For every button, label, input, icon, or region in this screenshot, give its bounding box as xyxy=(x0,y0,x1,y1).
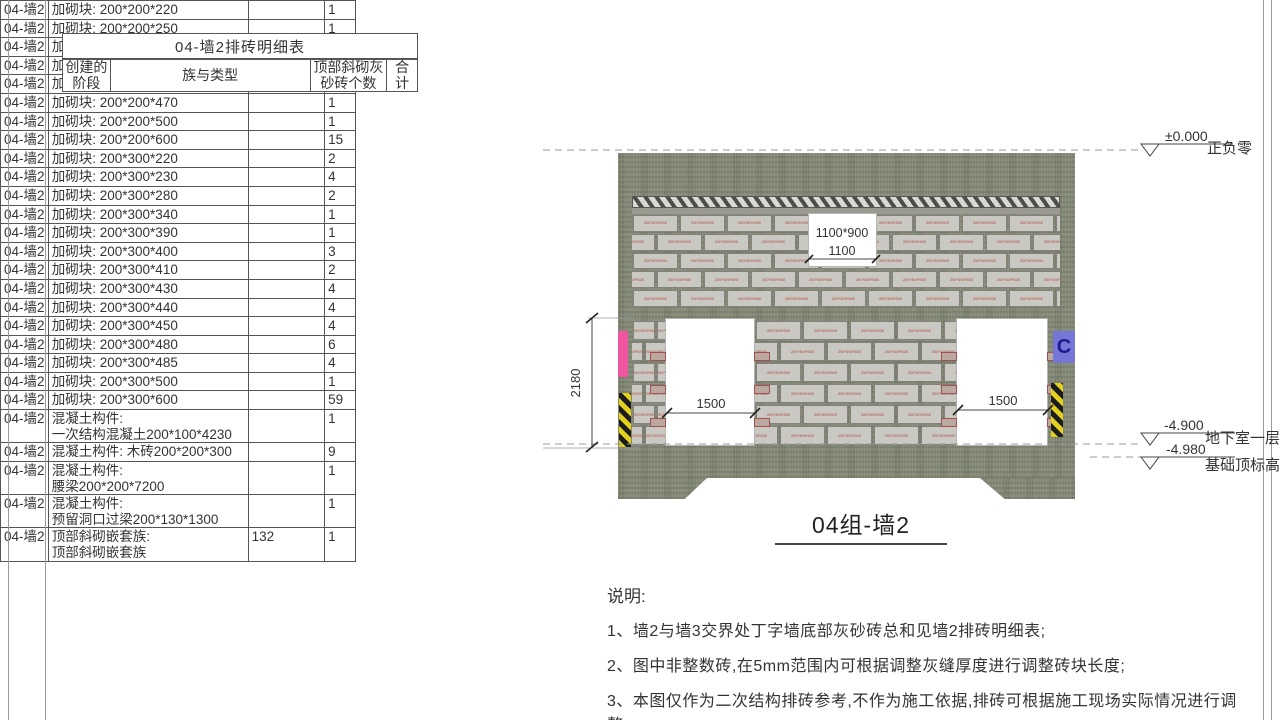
cell-count xyxy=(249,1,326,19)
cell-count xyxy=(249,131,326,149)
brick: 200*300*600 xyxy=(897,321,942,340)
level-value-foundation: -4.980 xyxy=(1166,441,1206,457)
cell-total: 4 xyxy=(325,168,355,186)
brick: 200*300*600 xyxy=(780,384,825,403)
brick: 200*300*600 xyxy=(915,215,960,232)
cell-count xyxy=(249,336,326,354)
brick: 200*300*600 xyxy=(944,363,956,382)
brick: 200*300*600 xyxy=(986,234,1031,251)
wood-brick xyxy=(754,418,770,427)
wood-brick xyxy=(754,352,770,361)
brick: 200*300*600 xyxy=(803,363,848,382)
cell-family: 加砌块: 200*300*280 xyxy=(49,187,249,205)
blue-marker-block: C xyxy=(1053,331,1075,363)
cell-family: 加砌块: 200*300*230 xyxy=(49,168,249,186)
wood-brick xyxy=(941,352,957,361)
table-row: 04-墙2顶部斜砌嵌套族:顶部斜砌嵌套族1321 xyxy=(1,528,355,561)
cell-family: 加砌块: 200*200*470 xyxy=(49,94,249,112)
brick: 200*300*600 xyxy=(680,253,725,270)
brick: 200*300*600 xyxy=(680,215,725,232)
brick: 200*300*600 xyxy=(850,405,895,424)
table-row: 04-墙2加砌块: 200*300*4806 xyxy=(1,336,355,355)
table-row: 04-墙2混凝土构件:预留洞口过梁200*130*13001 xyxy=(1,495,355,528)
cell-total: 15 xyxy=(325,131,355,149)
brick: 200*300*600 xyxy=(657,234,702,251)
table-row: 04-墙2加砌块: 200*300*3401 xyxy=(1,206,355,225)
cell-count xyxy=(249,462,326,494)
brick-zone-between-doors: 200*300*600200*300*600200*300*600200*300… xyxy=(755,320,956,446)
cell-total: 1 xyxy=(325,462,355,494)
notes-heading: 说明: xyxy=(607,582,1267,607)
cell-total: 4 xyxy=(325,317,355,335)
wood-brick xyxy=(650,385,666,394)
table-row: 04-墙2加砌块: 200*300*2202 xyxy=(1,150,355,169)
brick: 200*300*600 xyxy=(850,321,895,340)
brick: 200*300*600 xyxy=(633,321,655,340)
cell-family: 加砌块: 200*200*600 xyxy=(49,131,249,149)
brick: 200*300*600 xyxy=(827,342,872,361)
column-header-count: 顶部斜砌灰 砂砖个数 xyxy=(311,60,388,91)
table-row: 04-墙2加砌块: 200*300*4404 xyxy=(1,299,355,318)
cell-count xyxy=(249,317,326,335)
brick: 200*300*600 xyxy=(657,271,702,288)
brick: 200*300*600 xyxy=(633,215,678,232)
cell-count xyxy=(249,187,326,205)
brick: 200*300*600 xyxy=(751,234,796,251)
brick: 200*300*600 xyxy=(704,271,749,288)
brick: 200*300*600 xyxy=(632,234,655,251)
cell-count xyxy=(249,410,326,442)
cell-count xyxy=(249,94,326,112)
brick: 200*300*600 xyxy=(680,290,725,307)
cell-count xyxy=(249,261,326,279)
brick: 200*300*600 xyxy=(645,426,665,445)
brick: 200*300*600 xyxy=(921,426,957,445)
brick: 200*300*600 xyxy=(874,384,919,403)
cell-count xyxy=(249,224,326,242)
table-row: 04-墙2加砌块: 200*200*2201 xyxy=(1,1,355,20)
table-row: 04-墙2加砌块: 200*300*4102 xyxy=(1,261,355,280)
cell-family: 加砌块: 200*300*440 xyxy=(49,299,249,317)
brick: 200*300*600 xyxy=(755,426,778,445)
table-row: 04-墙2加砌块: 200*300*5001 xyxy=(1,373,355,392)
brick: 200*300*600 xyxy=(1033,271,1061,288)
table-row: 04-墙2加砌块: 200*300*2802 xyxy=(1,187,355,206)
wood-brick xyxy=(941,418,957,427)
cell-count: 132 xyxy=(249,528,326,561)
brick: 200*300*600 xyxy=(633,290,678,307)
brick: 200*300*600 xyxy=(986,271,1031,288)
cell-family: 加砌块: 200*300*220 xyxy=(49,150,249,168)
door-opening-1 xyxy=(665,318,755,446)
table-row: 04-墙2加砌块: 200*300*4003 xyxy=(1,243,355,262)
pink-marker-block xyxy=(618,331,628,377)
brick: 200*300*600 xyxy=(1009,253,1054,270)
cell-total: 1 xyxy=(325,224,355,242)
table-row: 04-墙2加砌块: 200*300*4854 xyxy=(1,354,355,373)
cell-family: 混凝土构件:一次结构混凝土200*100*4230 xyxy=(49,410,249,442)
cell-family: 加砌块: 200*200*220 xyxy=(49,1,249,19)
cell-total: 1 xyxy=(325,410,355,442)
sheet-border-left-outer xyxy=(8,0,9,720)
wood-brick xyxy=(941,385,957,394)
cell-family: 顶部斜砌嵌套族:顶部斜砌嵌套族 xyxy=(49,528,249,561)
foundation-foot-left xyxy=(618,478,707,499)
cell-total: 3 xyxy=(325,243,355,261)
sheet-border-left-inner xyxy=(45,0,46,720)
table-row: 04-墙2混凝土构件:腰梁200*200*72001 xyxy=(1,462,355,495)
cell-family: 加砌块: 200*300*430 xyxy=(49,280,249,298)
brick: 200*300*600 xyxy=(874,342,919,361)
cell-total: 1 xyxy=(325,206,355,224)
table-row: 04-墙2混凝土构件: 木砖200*200*3009 xyxy=(1,443,355,462)
cell-total: 4 xyxy=(325,280,355,298)
schedule-header: 创建的 阶段 族与类型 顶部斜砌灰 砂砖个数 合 计 xyxy=(62,59,418,92)
level-label-zero: 正负零 xyxy=(1207,140,1252,157)
brick: 200*300*600 xyxy=(939,271,984,288)
brick: 200*300*600 xyxy=(803,405,848,424)
cell-family: 加砌块: 200*300*340 xyxy=(49,206,249,224)
brick: 200*300*600 xyxy=(751,271,796,288)
brick: 200*300*600 xyxy=(897,405,942,424)
brick: 200*300*600 xyxy=(780,426,825,445)
cell-total: 59 xyxy=(325,391,355,409)
column-header-total: 合 计 xyxy=(387,60,417,91)
drawing-title: 04组-墙2 xyxy=(775,506,947,545)
brick: 200*300*600 xyxy=(780,342,825,361)
brick: 200*300*600 xyxy=(632,384,643,403)
cell-total: 4 xyxy=(325,299,355,317)
cell-total: 1 xyxy=(325,373,355,391)
wood-brick xyxy=(650,352,666,361)
cell-total: 1 xyxy=(325,528,355,561)
brick: 200*300*600 xyxy=(632,271,655,288)
top-diagonal-brick-row xyxy=(632,196,1060,208)
cell-count xyxy=(249,391,326,409)
level-symbol-foundation xyxy=(1141,457,1159,469)
cell-total: 1 xyxy=(325,1,355,19)
cell-total: 2 xyxy=(325,187,355,205)
foundation-foot-right xyxy=(980,478,1075,499)
brick: 200*300*600 xyxy=(1056,290,1060,307)
brick: 200*300*600 xyxy=(704,234,749,251)
cell-total: 4 xyxy=(325,354,355,372)
drawing-sheet: 04-墙2排砖明细表 创建的 阶段 族与类型 顶部斜砌灰 砂砖个数 合 计 04… xyxy=(0,0,1280,720)
table-row: 04-墙2加砌块: 200*300*4304 xyxy=(1,280,355,299)
note-item-1: 1、墙2与墙3交界处丁字墙底部灰砂砖总和见墙2排砖明细表; xyxy=(607,617,1267,641)
wood-brick xyxy=(754,385,770,394)
cell-family: 加砌块: 200*300*400 xyxy=(49,243,249,261)
brick: 200*300*600 xyxy=(827,426,872,445)
sheet-border-right-outer xyxy=(1271,0,1272,720)
table-row: 04-墙2加砌块: 200*200*5001 xyxy=(1,113,355,132)
brick: 200*300*600 xyxy=(632,426,643,445)
brick: 200*300*600 xyxy=(803,321,848,340)
brick: 200*300*600 xyxy=(874,426,919,445)
brick: 200*300*600 xyxy=(850,363,895,382)
cell-family: 加砌块: 200*300*450 xyxy=(49,317,249,335)
cell-family: 混凝土构件: 木砖200*200*300 xyxy=(49,443,249,461)
brick: 200*300*600 xyxy=(1056,253,1060,270)
brick: 200*300*600 xyxy=(633,253,678,270)
cell-count xyxy=(249,168,326,186)
brick: 200*300*600 xyxy=(633,363,655,382)
cell-family: 加砌块: 200*300*480 xyxy=(49,336,249,354)
table-row: 04-墙2加砌块: 200*300*2304 xyxy=(1,168,355,187)
notes-block: 说明: 1、墙2与墙3交界处丁字墙底部灰砂砖总和见墙2排砖明细表; 2、图中非整… xyxy=(607,582,1267,720)
cell-count xyxy=(249,280,326,298)
cell-count xyxy=(249,373,326,391)
brick: 200*300*600 xyxy=(892,234,937,251)
schedule-title: 04-墙2排砖明细表 xyxy=(62,33,418,59)
cell-count xyxy=(249,299,326,317)
note-item-3: 3、本图仅作为二次结构排砖参考,不作为施工依据,排砖可根据施工现场实际情况进行调… xyxy=(607,687,1267,720)
brick: 200*300*600 xyxy=(962,253,1007,270)
level-label-foundation: 基础顶标高 xyxy=(1205,457,1280,474)
level-value-basement: -4.900 xyxy=(1164,417,1204,433)
table-row: 04-墙2混凝土构件:一次结构混凝土200*100*42301 xyxy=(1,410,355,443)
cell-count xyxy=(249,443,326,461)
brick: 200*300*600 xyxy=(892,271,937,288)
brick: 200*300*600 xyxy=(756,363,801,382)
brick: 200*300*600 xyxy=(727,253,772,270)
cell-family: 混凝土构件:腰梁200*200*7200 xyxy=(49,462,249,494)
cell-family: 加砌块: 200*300*485 xyxy=(49,354,249,372)
cell-count xyxy=(249,354,326,372)
door-opening-2 xyxy=(956,318,1048,446)
brick: 200*300*600 xyxy=(962,215,1007,232)
brick: 200*300*600 xyxy=(939,234,984,251)
cell-family: 加砌块: 200*300*500 xyxy=(49,373,249,391)
table-row: 04-墙2加砌块: 200*200*4701 xyxy=(1,94,355,113)
top-opening xyxy=(808,213,877,267)
brick: 200*300*600 xyxy=(897,363,942,382)
level-value-zero: ±0.000 xyxy=(1165,128,1208,144)
brick: 200*300*600 xyxy=(915,253,960,270)
brick: 200*300*600 xyxy=(845,271,890,288)
cell-total: 1 xyxy=(325,495,355,527)
cell-total: 9 xyxy=(325,443,355,461)
cell-count xyxy=(249,206,326,224)
table-row: 04-墙2加砌块: 200*300*60059 xyxy=(1,391,355,410)
brick: 200*300*600 xyxy=(774,290,819,307)
brick: 200*300*600 xyxy=(868,290,913,307)
cell-total: 2 xyxy=(325,261,355,279)
cell-family: 加砌块: 200*300*600 xyxy=(49,391,249,409)
brick: 200*300*600 xyxy=(657,363,665,382)
wood-brick xyxy=(650,418,666,427)
cell-count xyxy=(249,243,326,261)
brick: 200*300*600 xyxy=(1009,215,1054,232)
hazard-stripe-block-right xyxy=(1051,383,1063,437)
brick: 200*300*600 xyxy=(821,290,866,307)
brick: 200*300*600 xyxy=(915,290,960,307)
cell-family: 加砌块: 200*300*410 xyxy=(49,261,249,279)
brick: 200*300*600 xyxy=(827,384,872,403)
brick: 200*300*600 xyxy=(632,342,643,361)
brick: 200*300*600 xyxy=(1009,290,1054,307)
note-item-2: 2、图中非整数砖,在5mm范围内可根据调整灰缝厚度进行调整砖块长度; xyxy=(607,652,1267,676)
cell-total: 1 xyxy=(325,113,355,131)
cell-family: 加砌块: 200*300*390 xyxy=(49,224,249,242)
table-row: 04-墙2加砌块: 200*200*60015 xyxy=(1,131,355,150)
cell-family: 混凝土构件:预留洞口过梁200*130*1300 xyxy=(49,495,249,527)
level-symbol-basement xyxy=(1141,433,1159,445)
brick: 200*300*600 xyxy=(944,321,956,340)
cell-count xyxy=(249,495,326,527)
cell-total: 6 xyxy=(325,336,355,354)
brick: 200*300*600 xyxy=(727,215,772,232)
brick: 200*300*600 xyxy=(962,290,1007,307)
hazard-stripe-block-left xyxy=(619,393,631,447)
cell-family: 加砌块: 200*200*500 xyxy=(49,113,249,131)
level-label-basement: 地下室一层 xyxy=(1205,430,1280,447)
table-row: 04-墙2加砌块: 200*300*3901 xyxy=(1,224,355,243)
column-header-family: 族与类型 xyxy=(111,60,311,91)
brick-zone-pier-left: 200*300*600200*300*600200*300*600200*300… xyxy=(632,320,665,446)
brick: 200*300*600 xyxy=(756,321,801,340)
cell-count xyxy=(249,113,326,131)
brick: 200*300*600 xyxy=(1056,215,1060,232)
brick: 200*300*600 xyxy=(1033,234,1061,251)
brick: 200*300*600 xyxy=(798,271,843,288)
cell-total: 2 xyxy=(325,150,355,168)
column-header-phase: 创建的 阶段 xyxy=(63,60,111,91)
brick: 200*300*600 xyxy=(657,321,665,340)
dim-wall-height: 2180 xyxy=(568,369,583,398)
cell-total: 1 xyxy=(325,94,355,112)
brick: 200*300*600 xyxy=(727,290,772,307)
level-symbol-zero xyxy=(1141,144,1159,156)
cell-count xyxy=(249,150,326,168)
table-row: 04-墙2加砌块: 200*300*4504 xyxy=(1,317,355,336)
